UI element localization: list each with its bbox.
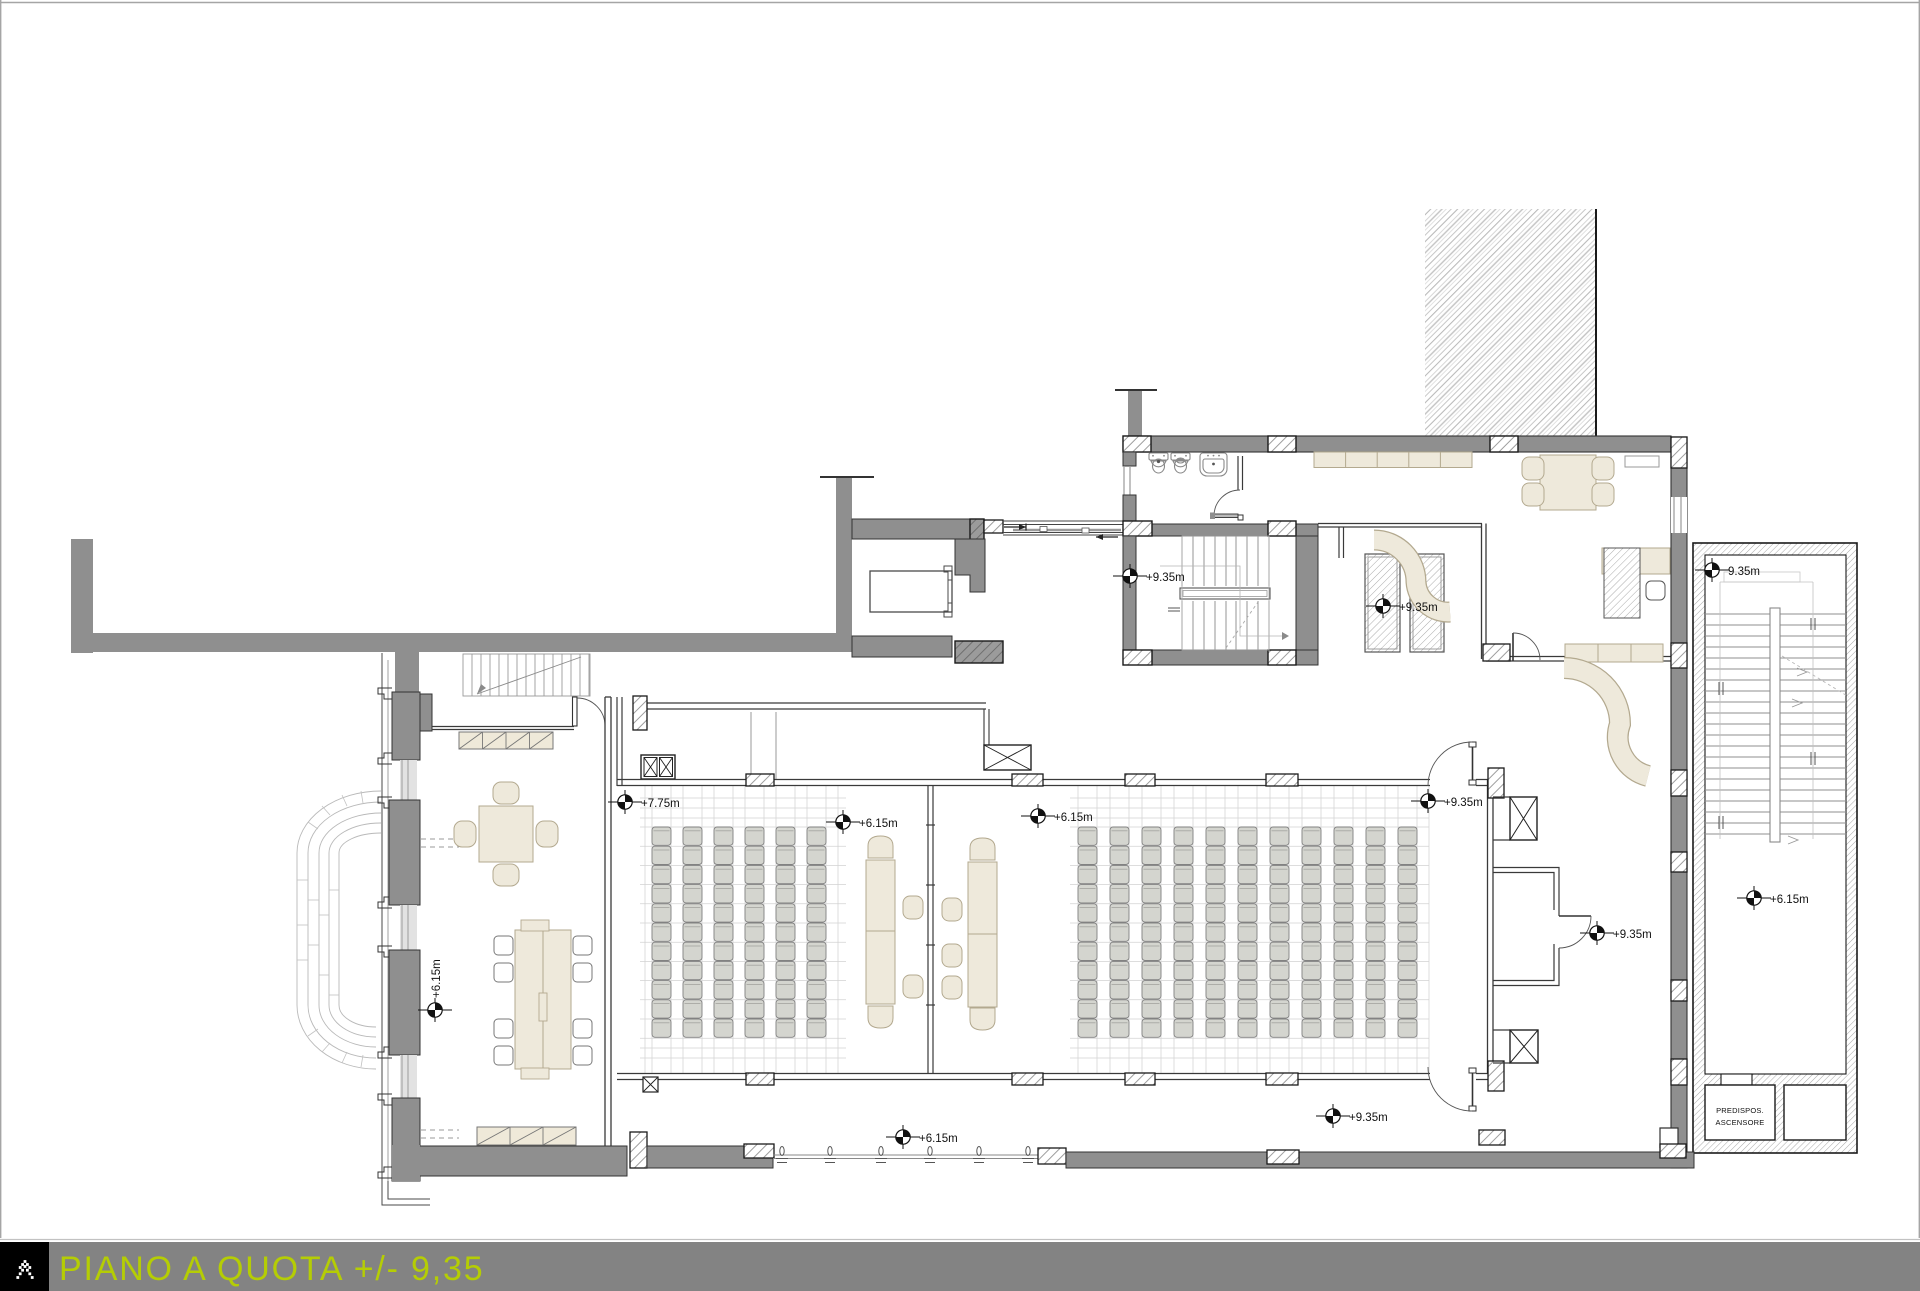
svg-text:9.35m: 9.35m bbox=[1728, 566, 1760, 578]
svg-text:+6.15m: +6.15m bbox=[919, 1133, 958, 1145]
svg-text:+6.15m: +6.15m bbox=[431, 959, 443, 998]
svg-text:+6.15m: +6.15m bbox=[1054, 812, 1093, 824]
svg-text:+6.15m: +6.15m bbox=[1770, 894, 1809, 906]
svg-text:+9.35m: +9.35m bbox=[1399, 602, 1438, 614]
svg-text:ASCENSORE: ASCENSORE bbox=[1716, 1118, 1765, 1127]
svg-text:+9.35m: +9.35m bbox=[1349, 1112, 1388, 1124]
svg-text:+9.35m: +9.35m bbox=[1444, 797, 1483, 809]
svg-text:+9.35m: +9.35m bbox=[1613, 929, 1652, 941]
svg-text:+6.15m: +6.15m bbox=[859, 818, 898, 830]
svg-text:PIANO A QUOTA +/- 9,35: PIANO A QUOTA +/- 9,35 bbox=[59, 1250, 484, 1288]
svg-text:PREDISPOS.: PREDISPOS. bbox=[1716, 1106, 1764, 1115]
svg-text:+9.35m: +9.35m bbox=[1146, 572, 1185, 584]
svg-text:+7.75m: +7.75m bbox=[641, 798, 680, 810]
